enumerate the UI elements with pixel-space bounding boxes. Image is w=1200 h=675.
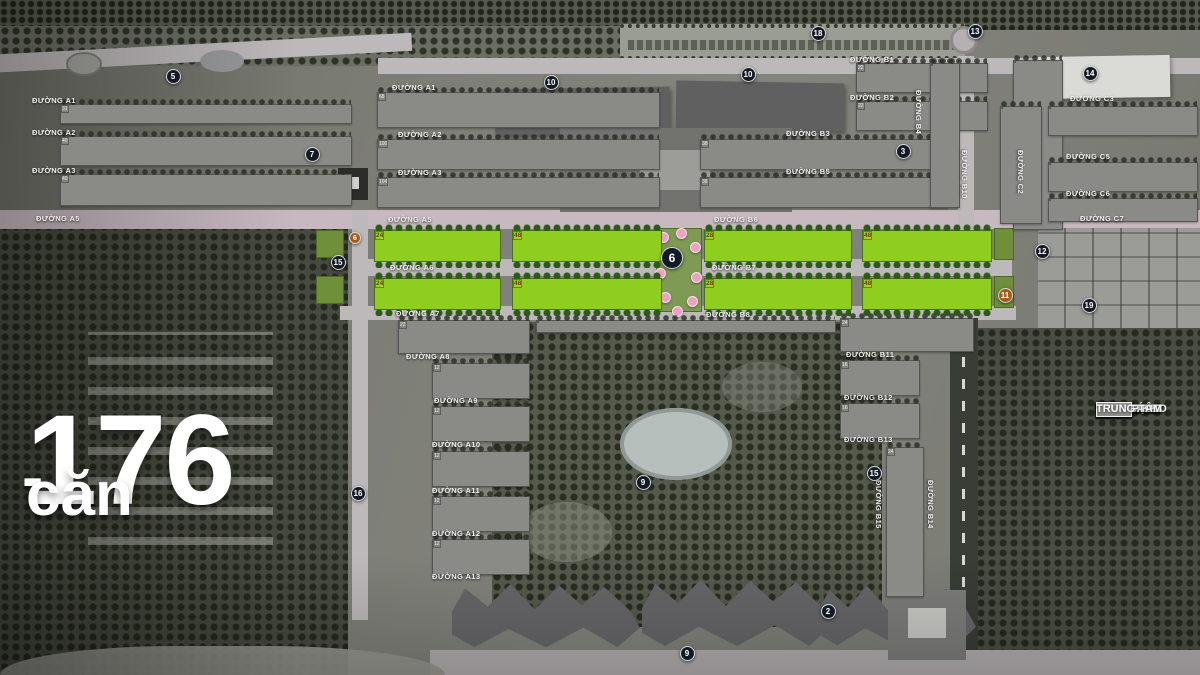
map-marker: 12 [1035,244,1050,259]
boulevard-median [620,24,965,60]
gray-lot-block: 1357911131517192123252729313335372681012… [60,174,352,206]
central-park [492,322,882,627]
forest-area-right [976,328,1200,675]
green-lot-block: 13579111517192126810121618202224 [374,278,501,310]
gray-lot-block: 7981838587899193959799101103788082848688… [377,177,660,208]
gray-lot-cell [1001,107,1003,109]
complex-building [1038,228,1200,328]
gray-lot-block: 12365871091211161318172019222124 [886,447,924,597]
hedge-pattern [628,40,958,50]
gray-lot-cell: 40 [61,137,69,145]
street-label: ĐƯỜNG B3 [786,129,830,138]
gray-lot-cell: 22 [857,102,865,110]
flower-icon [687,296,698,307]
fountain-plaza [66,52,102,76]
map-marker: 5 [166,69,181,84]
gray-lot-block [1048,106,1198,136]
street-label: ĐƯỜNG C3 [1070,94,1114,103]
street-label: ĐƯỜNG C6 [1066,189,1110,198]
street-label: ĐƯỜNG A5 [388,215,432,224]
gray-lot-block: 135792681012 [432,539,530,575]
street-label: ĐƯỜNG A12 [432,529,480,538]
map-marker: 14 [1083,66,1098,81]
map-marker: 19 [1082,298,1097,313]
gray-lot-block: 135792681012 [432,496,530,532]
promenade [430,650,1200,675]
map-marker: 16 [351,486,366,501]
pond [200,50,244,72]
street-label: ĐƯỜNG A9 [434,396,478,405]
map-marker: 15 [867,466,882,481]
gray-lot-cell: 12 [433,452,441,460]
gray-lot-cell: 24 [841,319,849,327]
map-marker: 6 [661,247,683,269]
school-building [888,590,966,660]
gray-lot-block: 135792681012 [432,406,530,442]
gray-lot-cell [1049,107,1051,109]
gray-lot-cell: 104 [378,178,388,186]
street-label: ĐƯỜNG B7 [712,263,756,272]
gray-lot-block: 1357911151719268101216182022 [398,320,530,354]
gray-lot-cell [1049,163,1051,165]
gray-lot-cell: 16 [841,361,849,369]
gray-lot-cell: 24 [887,448,895,456]
green-lot-block: 2325272931333537394143452628303234363840… [512,278,662,310]
gray-lot-cell [931,64,933,66]
street-label: ĐƯỜNG B2 [850,93,894,102]
street-label: ĐƯỜNG A1 [32,96,76,105]
street-label: ĐƯỜNG B5 [786,167,830,176]
green-lot-cell: 24 [375,279,384,288]
flower-icon [691,272,702,283]
green-lot-block: 1357911151719212325268101216182022242628 [704,230,852,262]
gray-lot-block: 1357911268101216 [840,360,920,396]
park-glade [522,502,612,562]
green-lot-block: 1357911151719212325268101216182022242628 [704,278,852,310]
gray-lot-cell: 40 [61,175,69,183]
gray-lot-block: 13579111517192126810121618202224 [840,318,974,352]
park-glade [722,362,802,412]
pocket-park [316,276,344,304]
map-marker: 11 [998,288,1013,303]
gray-lot-cell [537,321,539,323]
gray-lot-cell [1014,61,1016,63]
street-label: ĐƯỜNG A1 [392,83,436,92]
street-label: ĐƯỜNG A5 [36,214,80,223]
street-label: ĐƯỜNG A3 [398,168,442,177]
street-label: ĐƯỜNG B13 [844,435,893,444]
gray-lot-cell: 38 [701,140,709,148]
gray-lot-cell: 22 [399,321,407,329]
gray-lot-cell [1049,199,1051,201]
green-lot-block: 2729313335373941434530323436384042444648 [862,278,992,310]
street-label: ĐƯỜNG B12 [844,393,893,402]
school-court [908,608,946,638]
street-label: ĐƯỜNG B11 [846,350,894,359]
gray-lot-cell: 100 [378,140,388,148]
street-label: ĐƯỜNG C2 [1016,150,1025,194]
street-label: ĐƯỜNG A11 [432,486,480,495]
street-label: ĐƯỜNG B1 [850,55,894,64]
gray-lot-block: 135792681012 [432,363,530,399]
map-marker: 9 [680,646,695,661]
map-marker: 15 [331,255,346,270]
headline-unit: căn [26,464,133,526]
gray-lot-cell: 12 [433,407,441,415]
street-label: ĐƯỜNG C5 [1066,152,1110,161]
lake [620,408,732,480]
street-label: ĐƯỜNG A8 [406,352,450,361]
gray-lot-cell: 12 [433,540,441,548]
green-lot-cell: 48 [513,231,522,240]
map-marker: 13 [968,24,983,39]
street-label: ĐƯỜNG B15 [874,480,883,529]
gray-lot-cell: 68 [378,93,386,101]
gray-lot-cell: 22 [857,64,865,72]
gray-lot-block: 1357911131719212325272931333526810121618… [700,139,948,170]
green-lot-cell: 48 [513,279,522,288]
street-label: ĐƯỜNG A2 [398,130,442,139]
flower-icon [676,228,687,239]
green-lot-cell: 28 [705,279,714,288]
mall-building [676,81,845,132]
green-lot-cell: 48 [863,231,872,240]
green-lot-block: 13579111517192126810121618202224 [374,230,501,262]
map-marker: 10 [544,75,559,90]
gray-lot-block: 135792681012 [432,451,530,487]
map-marker: 7 [305,147,320,162]
street-label: ĐƯỜNG A7 [396,309,440,318]
street-label: ĐƯỜNG B4 [914,90,923,134]
map-marker: 6 [349,232,361,244]
street-label: ĐƯỜNG A2 [32,128,76,137]
green-lot-block: 2729313335373941434530323436384042444648 [862,230,992,262]
street-label: ĐƯỜNG B10 [960,150,969,199]
gray-lot-cell: 12 [433,497,441,505]
gray-lot-block: 7173757779818385878991939597991017072747… [377,139,660,170]
gray-lot-cell: 31 [61,105,69,113]
map-marker: 2 [821,604,836,619]
street-label: ĐƯỜNG A6 [390,263,434,272]
gray-lot-block [536,320,836,333]
gray-lot-block: 1357911268101216 [840,403,920,439]
pocket-park [994,228,1014,260]
street-label: ĐƯỜNG A3 [32,166,76,175]
gray-lot-block [930,63,960,208]
flower-icon [690,242,701,253]
green-lot-block: 2325272931333537394143452628303234363840… [512,230,662,262]
legend-label: TRUNG TÂM [1096,403,1162,415]
street-label: ĐƯỜNG A10 [432,440,480,449]
green-lot-cell: 28 [705,231,714,240]
master-plan-map: BIỆT THỰ SOTOWN HOUBIỆT THỰ ĐBIỆT THỰ ĐT… [0,0,1200,675]
gray-lot-cell: 12 [433,364,441,372]
map-marker: 9 [636,475,651,490]
street-label: ĐƯỜNG B6 [714,215,758,224]
map-marker: 18 [811,26,826,41]
gray-lot-block: 1357911151719268101216182022 [856,63,988,93]
map-marker: 3 [896,144,911,159]
gray-lot-cell: 16 [841,404,849,412]
street-label: ĐƯỜNG A13 [432,572,480,581]
green-lot-cell: 48 [863,279,872,288]
road-vertical-left [352,210,368,620]
gray-lot-block [1048,162,1198,192]
pocket-park [316,230,344,258]
gray-lot-block: 7375777981838587899193959799424446485052… [377,92,660,128]
gray-lot-cell: 38 [701,178,709,186]
gray-lot-block: 1357911151719212325272931333526810121618… [700,177,948,208]
green-lot-cell: 24 [375,231,384,240]
map-marker: 10 [741,67,756,82]
street-label: ĐƯỜNG C7 [1080,214,1124,223]
street-label: ĐƯỜNG B8 [706,310,750,319]
street-label: ĐƯỜNG B14 [926,480,935,529]
gray-lot-block: 135791113151719212325272931 [60,104,352,124]
